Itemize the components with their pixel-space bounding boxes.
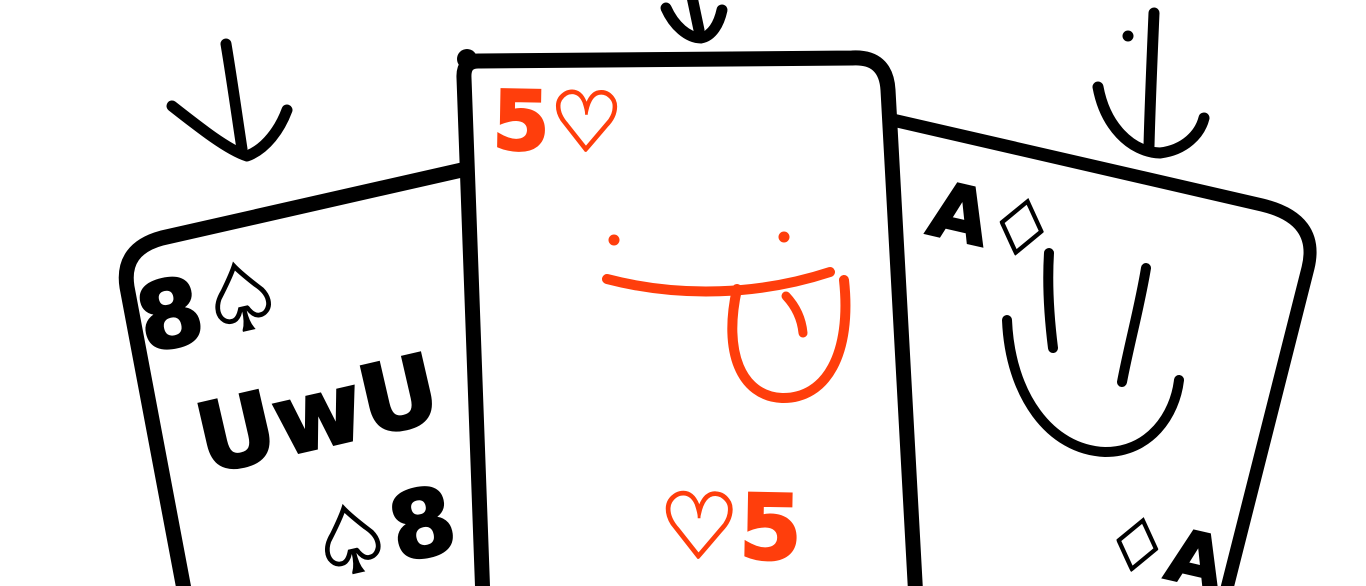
card-five-of-hearts-corner-top: 5♡ bbox=[492, 74, 624, 171]
middle-arrow-stem bbox=[691, 0, 699, 30]
card-ace-of-diamonds: A♢ ♢A bbox=[858, 112, 1310, 586]
card-corner-ink-blob bbox=[457, 49, 477, 69]
right-arrow-stem bbox=[1149, 13, 1154, 146]
face-right-eye bbox=[779, 232, 790, 243]
card-five-of-hearts: 5♡ ♡5 bbox=[457, 49, 916, 586]
face-left-eye bbox=[609, 235, 620, 246]
sketch-svg: 8♤ UwU ♤8 A♢ ♢A 5♡ ♡5 bbox=[0, 0, 1366, 586]
right-arrow-dot bbox=[1123, 31, 1134, 42]
card-ace-of-diamonds-outline bbox=[858, 112, 1310, 586]
left-arrow bbox=[172, 44, 287, 156]
card-five-of-hearts-corner-bottom: ♡5 bbox=[658, 474, 803, 581]
smiley-left-eye bbox=[1048, 253, 1053, 348]
drawing-canvas: 8♤ UwU ♤8 A♢ ♢A 5♡ ♡5 bbox=[0, 0, 1366, 586]
middle-arrow bbox=[666, 0, 722, 38]
right-arrow bbox=[1098, 13, 1204, 153]
left-arrow-stem bbox=[226, 44, 242, 149]
left-arrow-head bbox=[172, 106, 287, 156]
